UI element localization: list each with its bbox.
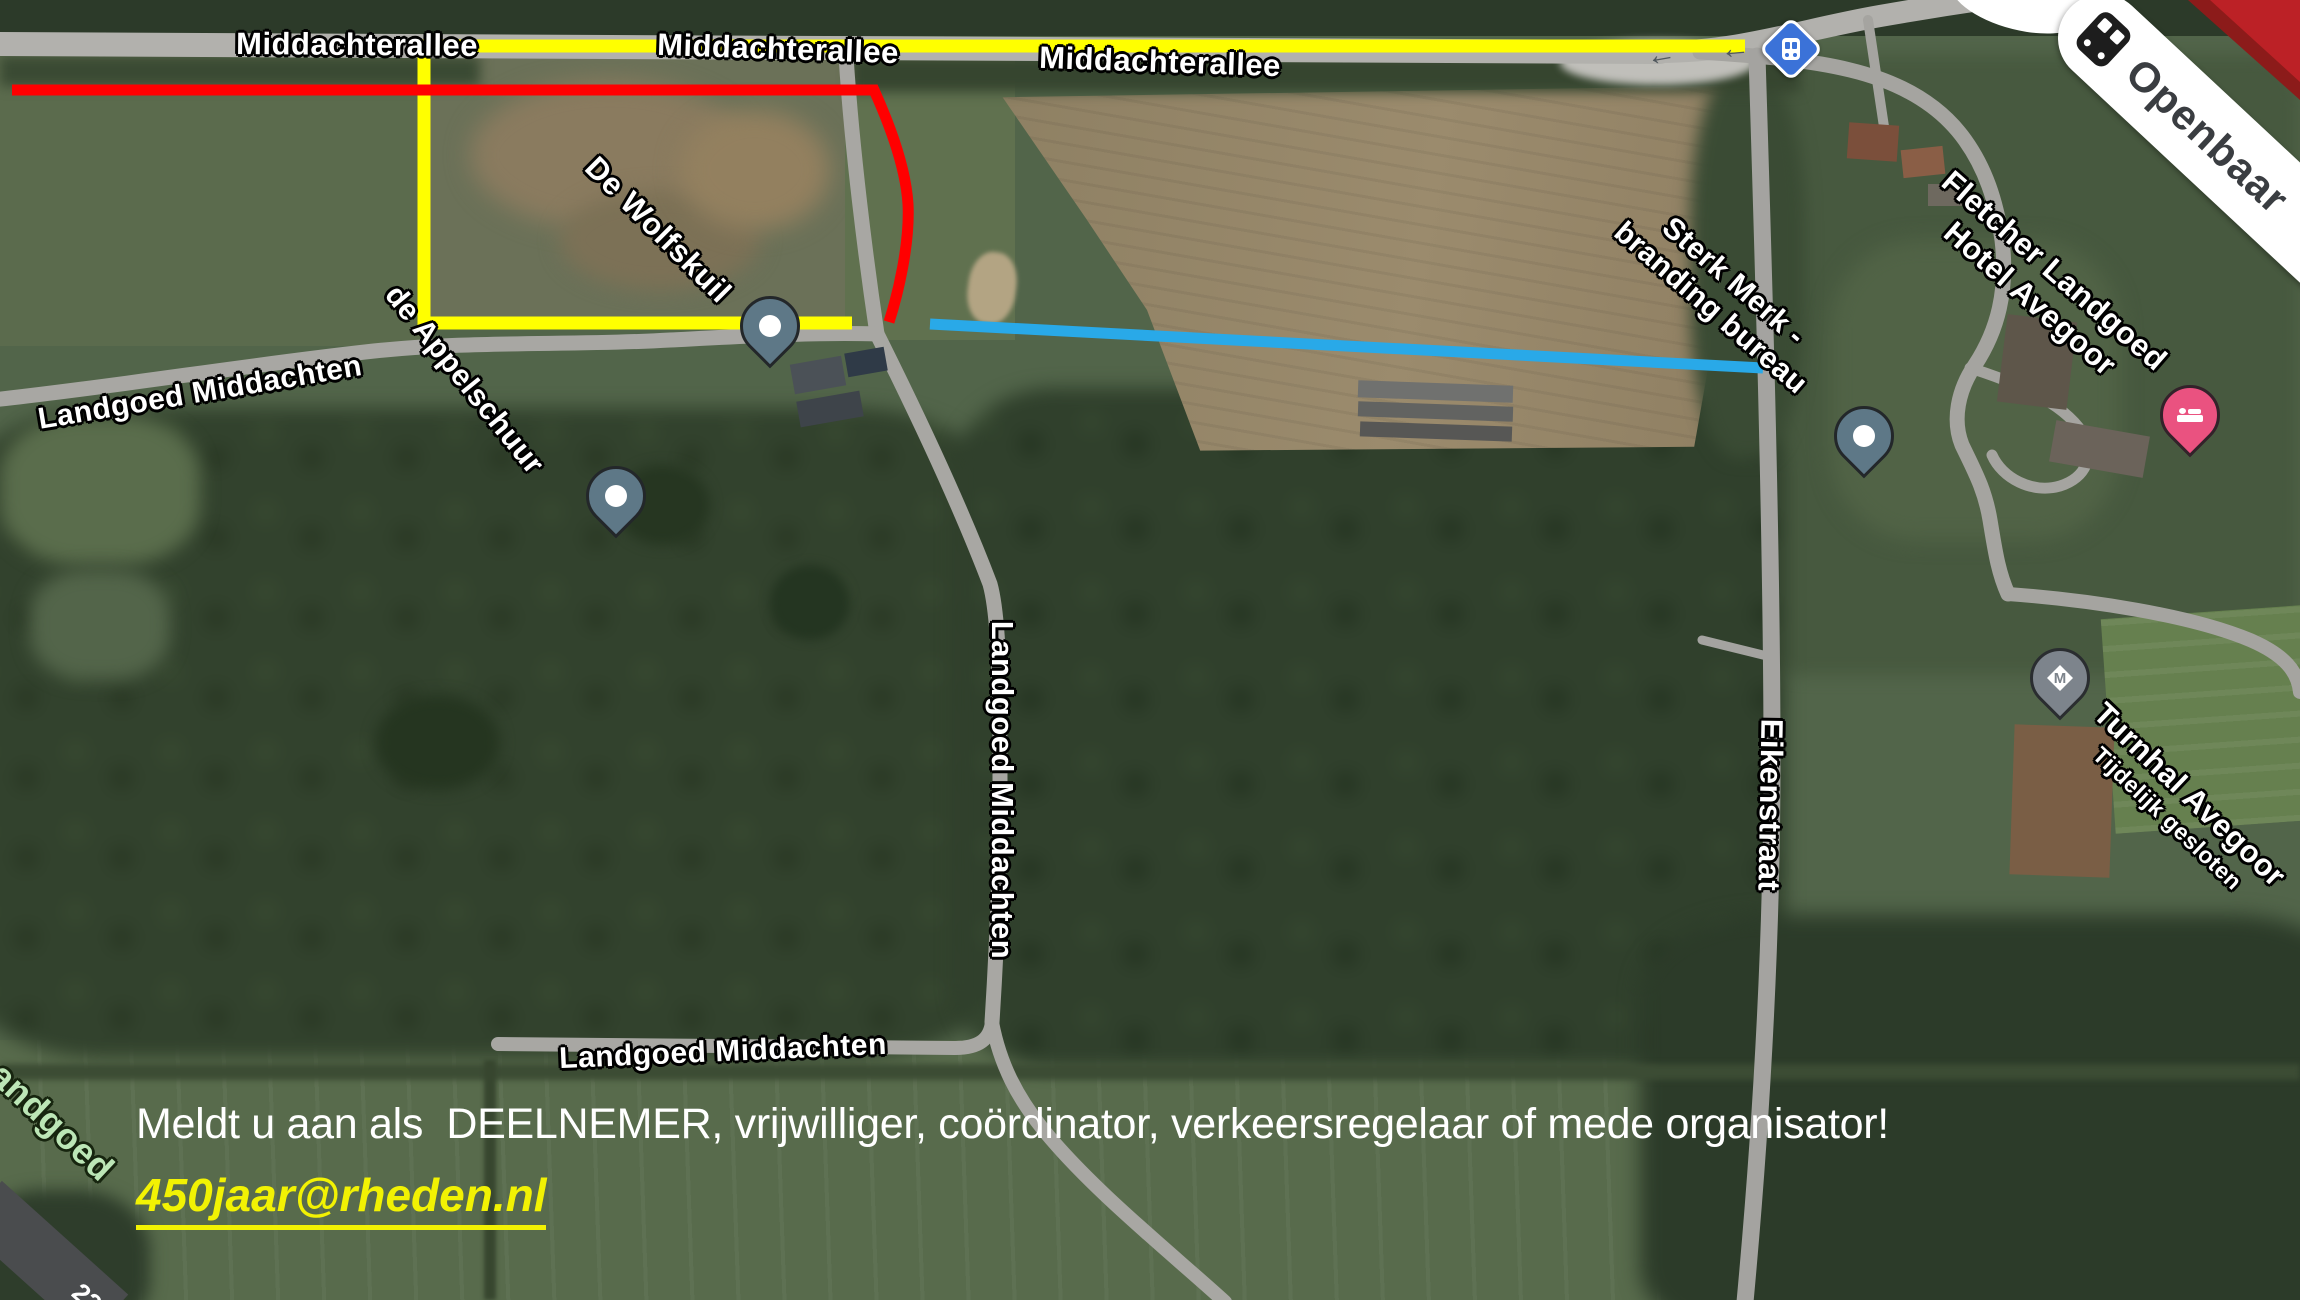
cta-text: Meldt u aan als DEELNEMER, vrijwilliger,… — [136, 1100, 1889, 1149]
map-canvas[interactable]: 22 ← ← Middachterallee Middachterallee M… — [0, 0, 2300, 1300]
cta-email-link[interactable]: 450jaar@rheden.nl — [136, 1168, 546, 1222]
email-text[interactable]: 450jaar@rheden.nl — [136, 1169, 546, 1230]
